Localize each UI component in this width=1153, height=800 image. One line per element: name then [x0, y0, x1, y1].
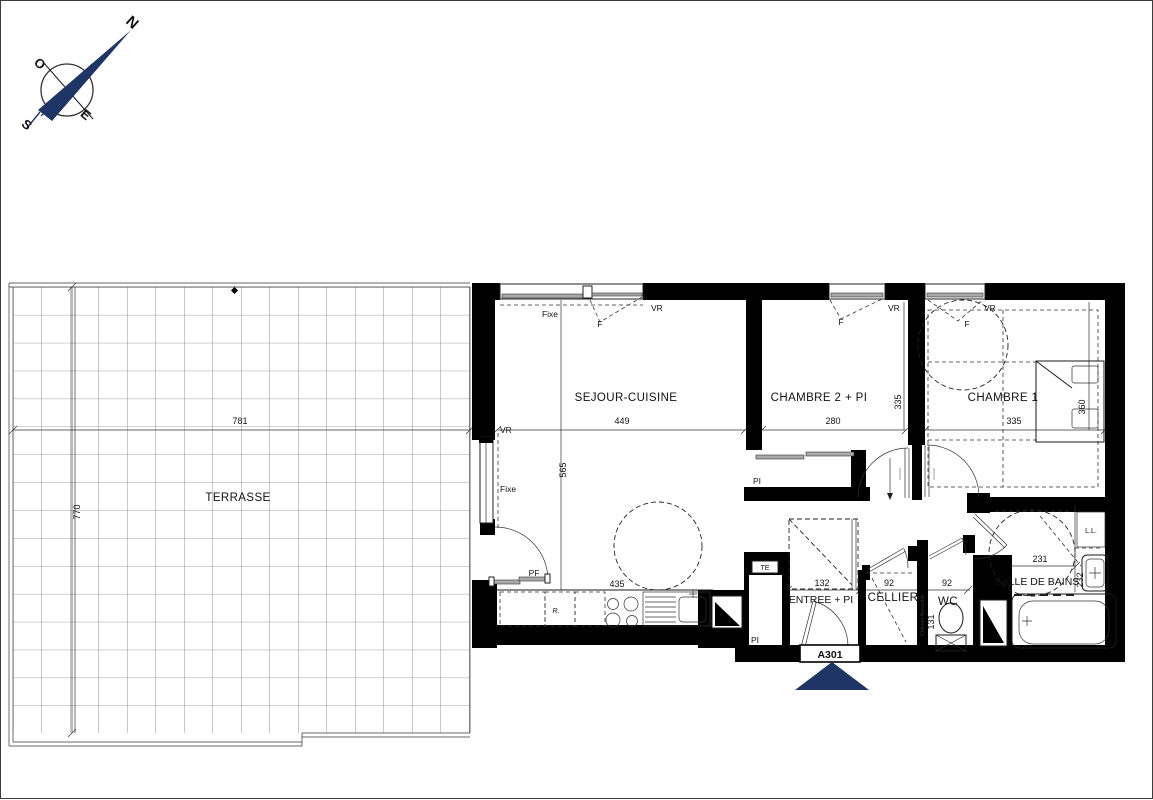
- compass-rose: N O E S: [19, 13, 142, 134]
- window-sejour-opening-sash: [592, 293, 642, 296]
- stove-burner-2: [624, 597, 638, 611]
- entrance-arrow: [795, 662, 869, 690]
- sink-drainboard: [645, 597, 676, 622]
- dim-terrasse-width: 781: [232, 416, 247, 426]
- dim-chambre2-width: 280: [825, 416, 840, 426]
- label-washer: L.L.: [1085, 528, 1097, 535]
- entrance-door-arc: [813, 601, 848, 647]
- room-label-sejour: SEJOUR-CUISINE: [575, 392, 678, 404]
- turning-circle-chambre1: [918, 300, 1008, 390]
- dim-chambre2-height: 335: [893, 394, 903, 409]
- dim-cellier-width: 92: [884, 578, 894, 588]
- kitchen-cabinet-1: [500, 592, 545, 626]
- label-fixe-left: Fixe: [500, 484, 516, 494]
- hall-door-right-arc: [927, 445, 979, 497]
- room-label-entree: ENTREE + PI: [789, 594, 853, 606]
- entree-closet-diagonal: [789, 519, 852, 585]
- pf-door-arc: [495, 527, 548, 580]
- cellier-door-leaf: [868, 548, 906, 572]
- basin-faucet: [1089, 567, 1101, 579]
- room-label-chambre1: CHAMBRE 1: [968, 392, 1039, 404]
- pf-door-jamb-right: [545, 574, 550, 583]
- compass-label-s: S: [19, 116, 36, 133]
- hall-door-left-leaf: [905, 448, 909, 498]
- compass-label-e: E: [78, 106, 95, 123]
- compass-label-o: O: [31, 55, 48, 73]
- dim-chambre1-width: 335: [1006, 416, 1021, 426]
- floor-plan-svg: N O E S TERRASSE 781 449 280 335 770 565…: [0, 0, 1153, 800]
- entrance-door-leaf: [801, 601, 816, 647]
- chambre2-closet-door-1: [756, 455, 804, 459]
- pf-door-jamb-left: [489, 577, 494, 586]
- window-chambre1-sash: [927, 293, 983, 297]
- dim-sejour-height: 565: [558, 462, 568, 477]
- label-vr-sejour: VR: [651, 303, 663, 313]
- label-fixe-top: Fixe: [542, 309, 558, 319]
- dim-sdb-width: 231: [1032, 554, 1047, 564]
- dim-kitchen-width: 435: [609, 579, 624, 589]
- room-label-cellier: CELLIER: [868, 592, 919, 604]
- compass-needle: [38, 30, 131, 121]
- wc-door-leaf: [929, 538, 963, 559]
- dim-entree-width: 132: [814, 578, 829, 588]
- room-labels: SEJOUR-CUISINE CHAMBRE 2 + PI CHAMBRE 1 …: [575, 392, 1097, 636]
- label-vr-left: VR: [500, 425, 512, 435]
- terrasse-border-bottom: [9, 733, 470, 746]
- window-sejour-mullion: [583, 286, 592, 298]
- compass-label-n: N: [122, 13, 141, 33]
- window-sejour-fixed-sash: [502, 294, 584, 298]
- label-vr-chambre2: VR: [888, 303, 900, 313]
- pf-door-leaf-1: [492, 580, 520, 584]
- turning-circle-sejour: [614, 502, 702, 590]
- floor-plan-page: N O E S TERRASSE 781 449 280 335 770 565…: [0, 0, 1153, 800]
- label-f-chambre2: F: [838, 317, 843, 327]
- dim-chambre1-height: 360: [1077, 399, 1087, 414]
- label-f-sejour: F: [597, 319, 602, 329]
- entree-closet-door: [852, 519, 856, 589]
- stove-burner-3: [606, 613, 620, 627]
- dim-terrasse-height: 770: [72, 504, 82, 519]
- label-pi-entree: PI: [751, 635, 759, 645]
- stove-burner-1: [608, 599, 619, 610]
- unit-marker: A301: [795, 645, 869, 690]
- room-label-terrasse: TERRASSE: [205, 492, 270, 504]
- terrasse-border-left: [9, 283, 13, 746]
- room-label-wc: WC: [938, 596, 958, 608]
- room-label-chambre2: CHAMBRE 2 + PI: [771, 392, 868, 404]
- bed-fold-line: [1036, 361, 1072, 388]
- label-pi-chambre2: PI: [753, 476, 761, 486]
- chambre2-closet-door-2: [806, 452, 854, 456]
- bathtub-inner: [1019, 601, 1109, 644]
- bathtub-faucet: [1022, 616, 1032, 626]
- hall-door-dim-arrow: [887, 493, 893, 500]
- label-te: TE: [761, 565, 770, 572]
- label-fridge: R.: [553, 608, 560, 615]
- unit-code: A301: [817, 649, 842, 661]
- terrasse-border-top: [9, 283, 470, 287]
- label-cloison-amovible: Cloison Amovible: [920, 594, 926, 636]
- label-pf: PF: [529, 568, 540, 578]
- label-f-chambre1: F: [964, 319, 969, 329]
- bed-pillow-1: [1072, 366, 1098, 383]
- stove-burner-4: [627, 616, 638, 627]
- window-chambre2-swing: [830, 298, 884, 319]
- dim-sejour-width: 449: [614, 416, 629, 426]
- room-label-sdb: SALLE DE BAINS: [995, 576, 1080, 588]
- window-chambre2-sash: [831, 293, 883, 297]
- dim-wc-width: 92: [942, 578, 952, 588]
- window-left-frame: [480, 437, 493, 523]
- label-vr-chambre1: VR: [984, 303, 996, 313]
- kitchen-cabinet-2: [575, 592, 605, 626]
- kitchen-fridge: [545, 592, 575, 626]
